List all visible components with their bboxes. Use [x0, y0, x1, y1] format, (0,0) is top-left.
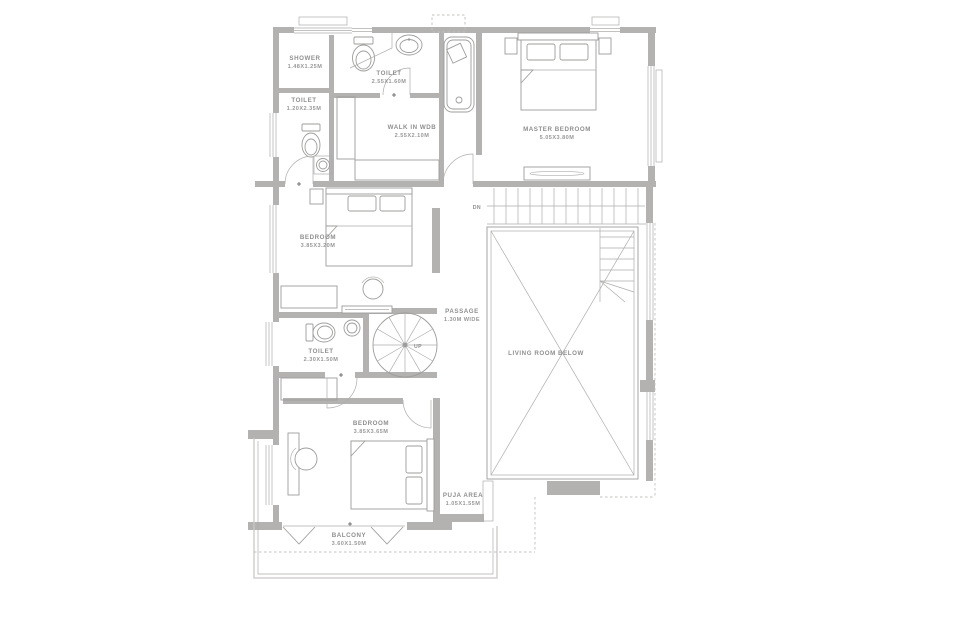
room-label-puja: PUJA AREA [443, 492, 483, 499]
room-label-living-below: LIVING ROOM BELOW [508, 350, 584, 357]
room-label-balcony: BALCONY [332, 532, 367, 539]
room-dims-bedroom-mid: 3.85X3.20M [301, 243, 336, 249]
toilet-mid-fixtures [306, 320, 360, 342]
headboard [326, 188, 412, 194]
floor-plan-page: DN UP [0, 0, 957, 625]
room-dims-master: 5.05X3.80M [540, 135, 575, 141]
pillow-icon [406, 477, 422, 504]
headboard [427, 439, 434, 511]
wc-tank-icon [306, 324, 313, 341]
floor-plan-svg: DN UP [0, 0, 957, 625]
pillow-icon [406, 446, 422, 473]
spiral-staircase: UP [373, 313, 437, 377]
door-master-bedroom [443, 154, 473, 184]
side-table [599, 38, 611, 54]
room-dims-puja: 1.05X1.55M [446, 501, 481, 507]
room-dims-toilet-top: 2.55X1.60M [372, 79, 407, 85]
room-label-bedroom-bot: BEDROOM [353, 420, 389, 427]
stool-icon [363, 279, 383, 299]
stairs-down-label: DN [473, 205, 481, 211]
room-dims-passage: 1.30M WIDE [444, 317, 480, 323]
pillow-icon [560, 44, 588, 60]
corridor-wardrobe [281, 378, 337, 400]
room-dims-walkin: 2.55X2.10M [395, 133, 430, 139]
room-label-walkin: WALK IN WDB [388, 124, 437, 131]
living-room-void [483, 227, 638, 521]
room-dims-toilet-left: 1.20X2.35M [287, 106, 322, 112]
wc-tank-icon [354, 37, 373, 44]
bedroom-wardrobe [281, 286, 337, 308]
wc-tank-icon [302, 124, 320, 131]
folding-door-icon [371, 527, 403, 544]
master-bed [505, 33, 611, 180]
bedroom-bottom-furniture [288, 433, 434, 511]
room-dims-bedroom-bot: 3.85X3.65M [354, 429, 389, 435]
stairs-up-label: UP [414, 344, 422, 350]
folding-door-icon [283, 527, 315, 544]
room-dims-toilet-mid: 2.30X1.50M [304, 357, 339, 363]
door-bedroom-bottom [403, 400, 431, 428]
pillow-icon [348, 196, 376, 211]
staircase-down: DN [473, 188, 646, 302]
headboard [518, 33, 598, 40]
door-toilet-left [285, 156, 313, 184]
room-label-bedroom-mid: BEDROOM [300, 234, 336, 241]
room-dims-shower: 1.48X1.25M [288, 64, 323, 70]
puja-column [483, 481, 493, 521]
room-label-master: MASTER BEDROOM [523, 126, 591, 133]
room-dims-balcony: 3.60X1.50M [332, 541, 367, 547]
side-table [310, 189, 323, 204]
walkin-wardrobe-vertical [337, 97, 355, 159]
chair-icon [295, 448, 317, 470]
pillow-icon [380, 196, 405, 211]
room-label-passage: PASSAGE [445, 308, 479, 315]
side-table [505, 38, 517, 54]
room-label-toilet-top: TOILET [376, 70, 401, 77]
toilet-top-fixtures [350, 33, 422, 71]
walkin-wardrobe-horizontal [355, 160, 439, 180]
bedroom-mid-furniture [310, 188, 412, 313]
bathtub [444, 37, 474, 112]
room-label-toilet-left: TOILET [291, 97, 316, 104]
pillow-icon [527, 44, 555, 60]
dresser-icon [524, 167, 590, 180]
room-label-shower: SHOWER [289, 55, 320, 62]
toilet-left-fixtures [302, 124, 332, 174]
room-label-toilet-mid: TOILET [308, 348, 333, 355]
